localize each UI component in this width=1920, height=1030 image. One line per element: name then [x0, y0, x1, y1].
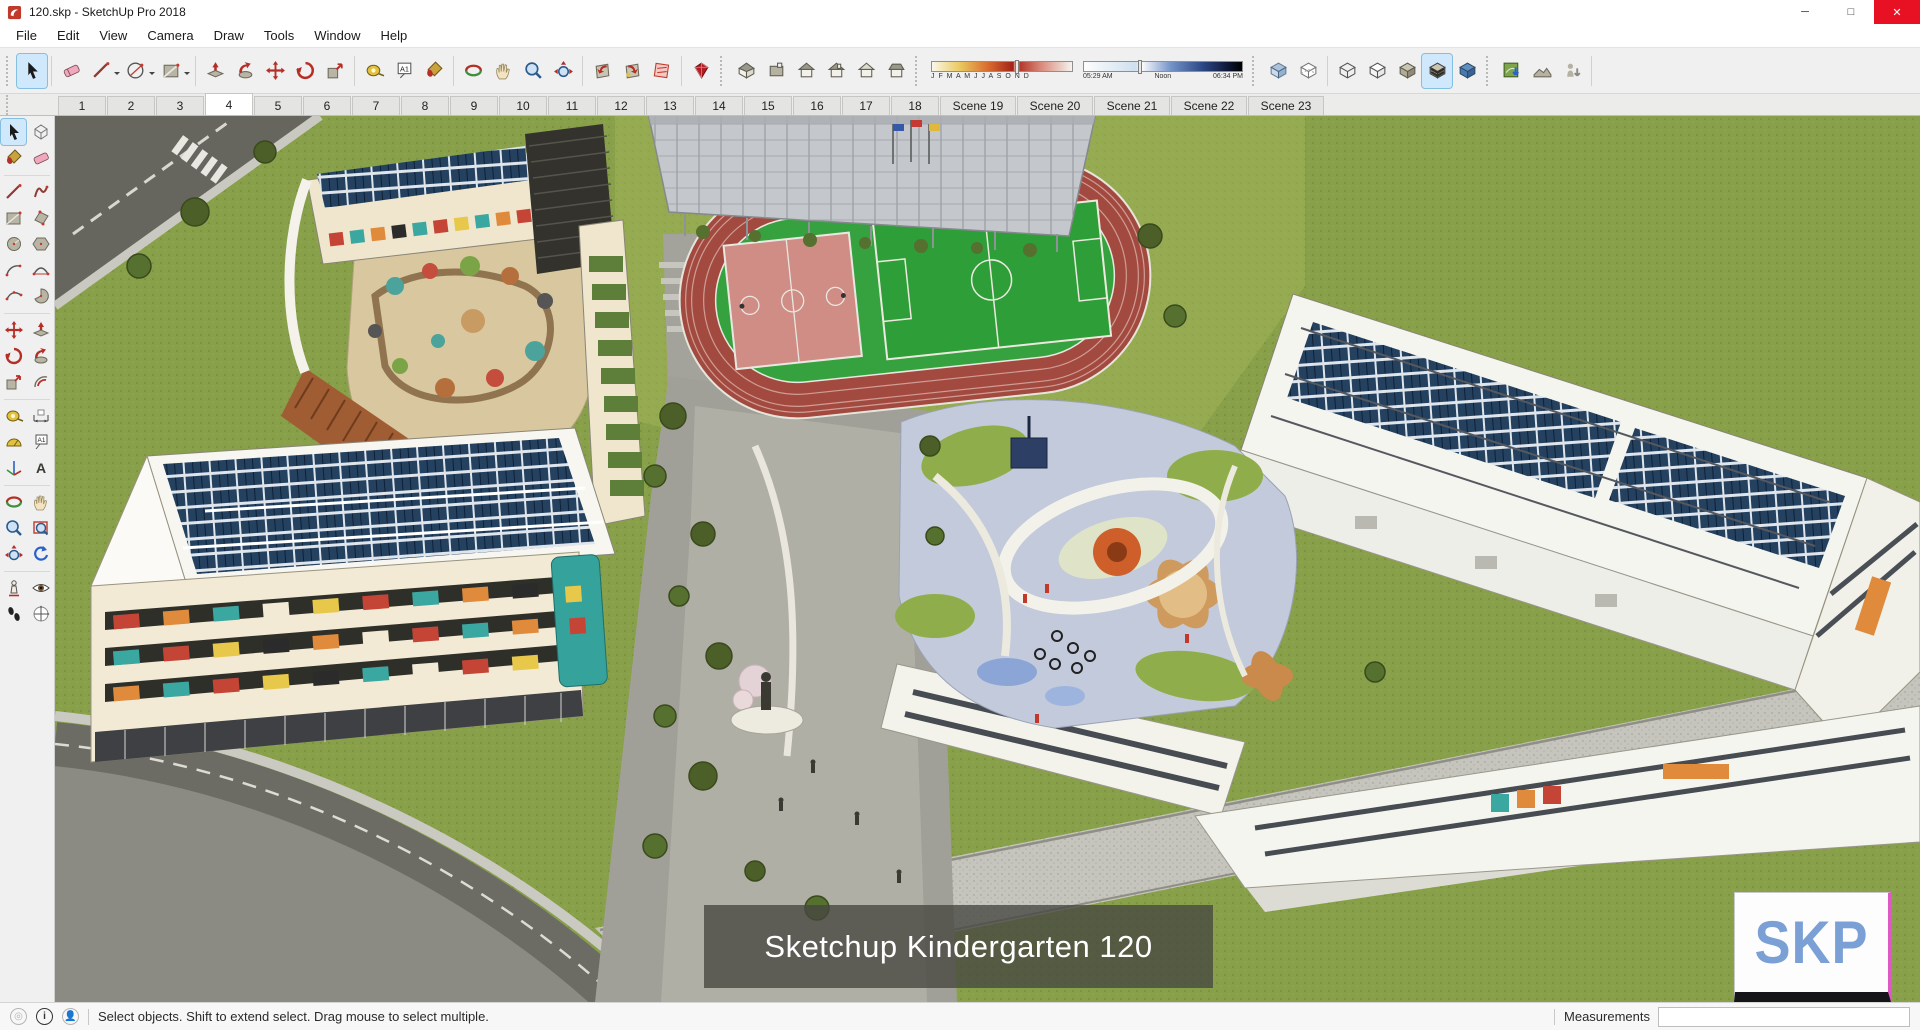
svg-text:A: A [35, 460, 45, 476]
zoom-extents-tool-button[interactable] [548, 54, 578, 88]
scene-tab-7[interactable]: 7 [352, 96, 400, 115]
zoom-icon [523, 60, 544, 81]
zoom-extents-icon [553, 60, 574, 81]
rotated-rectangle-icon [31, 208, 51, 228]
lt-dimension-button[interactable] [28, 403, 53, 429]
scene-caption: Sketchup Kindergarten 120 [704, 905, 1213, 988]
pan-icon [31, 492, 51, 512]
x-ray-icon [1268, 60, 1289, 81]
menu-draw[interactable]: Draw [204, 24, 254, 47]
push-pull-icon [31, 320, 51, 340]
move-icon [265, 60, 286, 81]
arc-icon [126, 60, 147, 81]
scene-tab-3[interactable]: 3 [156, 96, 204, 115]
scene-tab-22[interactable]: Scene 22 [1171, 96, 1247, 115]
orbit-icon [4, 492, 24, 512]
scene-tab-1[interactable]: 1 [58, 96, 106, 115]
scene-tab-20[interactable]: Scene 20 [1017, 96, 1093, 115]
look-around-icon [31, 578, 51, 598]
scene-tab-21[interactable]: Scene 21 [1094, 96, 1170, 115]
monochrome-icon [1457, 60, 1478, 81]
three-d-text-icon: A [31, 458, 51, 478]
lt-three-point-arc-button[interactable] [1, 283, 26, 309]
lt-select-button[interactable] [1, 119, 26, 145]
shadow-time-slider[interactable]: 05:29 AM Noon 06:34 PM [1083, 61, 1243, 80]
right-view-icon [826, 60, 847, 81]
pie-icon [31, 286, 51, 306]
select-icon [4, 122, 24, 142]
select-icon [22, 60, 43, 81]
right-view-button[interactable] [821, 54, 851, 88]
pan-tool-button[interactable] [488, 54, 518, 88]
skp-watermark: SKP [1734, 892, 1891, 1002]
shape-dropdown-arrow[interactable] [184, 72, 190, 78]
scene-tabs-bar: 1 2 3 4 5 6 7 8 9 10 11 12 13 14 15 16 1… [0, 94, 1920, 116]
lt-pie-button[interactable] [28, 283, 53, 309]
hidden-line-icon [1367, 60, 1388, 81]
zoom-window-icon [31, 518, 51, 538]
rectangle-icon [4, 208, 24, 228]
time-start-label: 05:29 AM [1083, 73, 1113, 80]
lt-orbit-button[interactable] [1, 489, 26, 515]
lt-previous-view-button[interactable] [28, 541, 53, 567]
scene-tab-14[interactable]: 14 [695, 96, 743, 115]
toolbar-grip[interactable] [6, 56, 13, 86]
menu-tools[interactable]: Tools [254, 24, 304, 47]
scene-tab-2[interactable]: 2 [107, 96, 155, 115]
follow-me-icon [31, 346, 51, 366]
back-edges-style-button[interactable] [1293, 54, 1323, 88]
zoom-tool-button[interactable] [518, 54, 548, 88]
three-point-arc-icon [4, 286, 24, 306]
section-plane-icon [31, 604, 51, 624]
left-view-icon [886, 60, 907, 81]
shaded-icon [1397, 60, 1418, 81]
time-slider-track[interactable] [1083, 61, 1243, 72]
photo-textures-icon [1562, 60, 1583, 81]
status-bar: ◎ i 👤 Select objects. Shift to extend se… [0, 1002, 1920, 1030]
add-location-icon [1502, 60, 1523, 81]
lt-two-point-arc-button[interactable] [28, 257, 53, 283]
lt-line-button[interactable] [1, 179, 26, 205]
lt-position-camera-button[interactable] [1, 575, 26, 601]
zoom-extents-icon [4, 544, 24, 564]
scene-tab-17[interactable]: 17 [842, 96, 890, 115]
maximize-button[interactable]: □ [1828, 0, 1874, 24]
lt-zoom-window-button[interactable] [28, 515, 53, 541]
paint-bucket-icon [4, 148, 24, 168]
lt-pan-button[interactable] [28, 489, 53, 515]
move-icon [4, 320, 24, 340]
time-mid-label: Noon [1154, 73, 1171, 80]
lt-section-plane-button[interactable] [28, 601, 53, 627]
menu-view[interactable]: View [89, 24, 137, 47]
freehand-icon [31, 182, 51, 202]
status-message: Select objects. Shift to extend select. … [98, 1009, 1545, 1024]
shadow-date-slider[interactable]: J F M A M J J A S O N D [931, 61, 1073, 80]
scene-tab-23[interactable]: Scene 23 [1248, 96, 1324, 115]
rooftop-playground[interactable] [895, 400, 1297, 728]
lt-tape-measure-button[interactable] [1, 403, 26, 429]
south-west-building[interactable] [91, 428, 615, 762]
rotate-icon [4, 346, 24, 366]
wireframe-style-button[interactable] [1332, 54, 1362, 88]
scene-tab-15[interactable]: 15 [744, 96, 792, 115]
lt-3d-text-button[interactable]: A [28, 455, 53, 481]
arc-tool-button[interactable] [121, 54, 151, 88]
lt-move-button[interactable] [1, 317, 26, 343]
rectangle-tool-button[interactable] [156, 54, 186, 88]
menu-window[interactable]: Window [304, 24, 370, 47]
zoom-icon [4, 518, 24, 538]
eraser-icon [61, 60, 82, 81]
monochrome-style-button[interactable] [1452, 54, 1482, 88]
menu-file[interactable]: File [6, 24, 47, 47]
photo-textures-button[interactable] [1557, 54, 1587, 88]
main-toolbar: A1 J F M A M J J A S O N D 05:29 AM Noon… [0, 48, 1920, 94]
follow-me-icon [235, 60, 256, 81]
eraser-icon [31, 148, 51, 168]
lt-protractor-button[interactable] [1, 429, 26, 455]
date-slider-handle[interactable] [1015, 60, 1019, 74]
scene-tab-18[interactable]: 18 [891, 96, 939, 115]
select-tool-button[interactable] [17, 54, 47, 88]
front-view-button[interactable] [791, 54, 821, 88]
scene-tab-8[interactable]: 8 [401, 96, 449, 115]
svg-text:A1: A1 [400, 65, 409, 74]
previous-icon [592, 60, 613, 81]
scale-icon [4, 372, 24, 392]
measurements-input[interactable] [1658, 1007, 1910, 1027]
window-title: 120.skp - SketchUp Pro 2018 [29, 5, 186, 19]
orbit-tool-button[interactable] [458, 54, 488, 88]
dimension-icon [31, 406, 51, 426]
orbit-icon [463, 60, 484, 81]
lt-freehand-button[interactable] [28, 179, 53, 205]
axes-icon [4, 458, 24, 478]
top-view-button[interactable] [761, 54, 791, 88]
large-tool-set: A1 A [0, 116, 55, 1002]
top-view-icon [766, 60, 787, 81]
scene-tab-4[interactable]: 4 [205, 93, 253, 115]
offset-icon [31, 372, 51, 392]
watermark-text: SKP [1754, 908, 1868, 977]
location-toolbar-grip[interactable] [1486, 56, 1493, 86]
circle-icon [4, 234, 24, 254]
shaded-with-textures-style-button[interactable] [1422, 54, 1452, 88]
shaded-style-button[interactable] [1392, 54, 1422, 88]
line-tool-button[interactable] [86, 54, 116, 88]
scene-tab-12[interactable]: 12 [597, 96, 645, 115]
wireframe-icon [1337, 60, 1358, 81]
next-view-button[interactable] [617, 54, 647, 88]
lt-offset-button[interactable] [28, 369, 53, 395]
pencil-icon [4, 182, 24, 202]
lt-make-component-button[interactable] [28, 119, 53, 145]
tape-measure-icon [364, 60, 385, 81]
eraser-tool-button[interactable] [56, 54, 86, 88]
protractor-icon [4, 432, 24, 452]
add-location-button[interactable] [1497, 54, 1527, 88]
text-icon: A1 [31, 432, 51, 452]
date-slider-track[interactable] [931, 61, 1073, 72]
minimize-button[interactable]: ─ [1782, 0, 1828, 24]
section-plane-icon [652, 60, 673, 81]
iso-view-button[interactable] [731, 54, 761, 88]
back-edges-icon [1298, 60, 1319, 81]
lt-zoom-button[interactable] [1, 515, 26, 541]
scene-tabs-grip[interactable] [6, 95, 58, 115]
scene-tab-13[interactable]: 13 [646, 96, 694, 115]
model-viewport[interactable]: Sketchup Kindergarten 120 SKP [55, 116, 1920, 1002]
sketchup-logo-icon [7, 5, 22, 20]
menu-edit[interactable]: Edit [47, 24, 89, 47]
lt-rotate-button[interactable] [1, 343, 26, 369]
back-view-button[interactable] [851, 54, 881, 88]
scene-tab-10[interactable]: 10 [499, 96, 547, 115]
previous-view-icon [31, 544, 51, 564]
lt-push-pull-button[interactable] [28, 317, 53, 343]
rotate-tool-button[interactable] [290, 54, 320, 88]
front-view-icon [796, 60, 817, 81]
scene-tab-6[interactable]: 6 [303, 96, 351, 115]
shadow-toolbar-grip[interactable] [915, 56, 922, 86]
scale-tool-button[interactable] [320, 54, 350, 88]
lt-rectangle-button[interactable] [1, 205, 26, 231]
lt-scale-button[interactable] [1, 369, 26, 395]
lt-paint-bucket-button[interactable] [1, 145, 26, 171]
text-icon: A1 [394, 60, 415, 81]
scene-tab-11[interactable]: 11 [548, 96, 596, 115]
lt-look-around-button[interactable] [28, 575, 53, 601]
section-plane-button[interactable] [647, 54, 677, 88]
arc-icon [4, 260, 24, 280]
scale-icon [325, 60, 346, 81]
status-divider [88, 1009, 89, 1025]
lt-arc-button[interactable] [1, 257, 26, 283]
lt-text-button[interactable]: A1 [28, 429, 53, 455]
follow-me-tool-button[interactable] [230, 54, 260, 88]
text-tool-button[interactable]: A1 [389, 54, 419, 88]
tape-measure-tool-button[interactable] [359, 54, 389, 88]
menu-bar: File Edit View Camera Draw Tools Window … [0, 24, 1920, 48]
kindergarten-3d-model[interactable] [55, 116, 1920, 1002]
svg-text:A1: A1 [37, 437, 45, 444]
shaded-textures-icon [1427, 60, 1448, 81]
play-structure [1011, 438, 1047, 468]
lt-zoom-extents-button[interactable] [1, 541, 26, 567]
lt-rotated-rectangle-button[interactable] [28, 205, 53, 231]
lt-polygon-button[interactable] [28, 231, 53, 257]
lt-circle-button[interactable] [1, 231, 26, 257]
hidden-line-style-button[interactable] [1362, 54, 1392, 88]
measurements-label: Measurements [1564, 1009, 1650, 1024]
push-pull-icon [205, 60, 226, 81]
next-icon [622, 60, 643, 81]
back-view-icon [856, 60, 877, 81]
measurements-divider [1554, 1009, 1555, 1025]
caption-text: Sketchup Kindergarten 120 [764, 929, 1152, 965]
menu-camera[interactable]: Camera [137, 24, 203, 47]
ruby-icon [691, 60, 712, 81]
x-ray-style-button[interactable] [1263, 54, 1293, 88]
time-slider-handle[interactable] [1138, 60, 1142, 74]
iso-view-icon [736, 60, 757, 81]
lt-axes-button[interactable] [1, 455, 26, 481]
polygon-icon [31, 234, 51, 254]
position-camera-icon [4, 578, 24, 598]
toggle-terrain-icon [1532, 60, 1553, 81]
lt-eraser-button[interactable] [28, 145, 53, 171]
pencil-icon [91, 60, 112, 81]
scene-tab-5[interactable]: 5 [254, 96, 302, 115]
scene-tab-19[interactable]: Scene 19 [940, 96, 1016, 115]
scene-tab-9[interactable]: 9 [450, 96, 498, 115]
close-button[interactable]: ✕ [1874, 0, 1920, 24]
lt-walk-button[interactable] [1, 601, 26, 627]
teal-end-block [551, 554, 608, 687]
basketball-court[interactable] [724, 233, 862, 369]
toggle-terrain-button[interactable] [1527, 54, 1557, 88]
two-point-arc-icon [31, 260, 51, 280]
previous-view-button[interactable] [587, 54, 617, 88]
ruby-console-button[interactable] [686, 54, 716, 88]
paint-bucket-tool-button[interactable] [419, 54, 449, 88]
scene-tab-16[interactable]: 16 [793, 96, 841, 115]
make-component-icon [31, 122, 51, 142]
tape-measure-icon [4, 406, 24, 426]
month-labels: J F M A M J J A S O N D [931, 73, 1073, 80]
info-icon[interactable]: i [36, 1008, 53, 1025]
left-view-button[interactable] [881, 54, 911, 88]
rotate-icon [295, 60, 316, 81]
pan-icon [493, 60, 514, 81]
paint-bucket-icon [424, 60, 445, 81]
title-bar: 120.skp - SketchUp Pro 2018 ─ □ ✕ [0, 0, 1920, 24]
views-toolbar-grip[interactable] [720, 56, 727, 86]
rectangle-icon [161, 60, 182, 81]
line-dropdown-arrow[interactable] [114, 72, 120, 78]
move-tool-button[interactable] [260, 54, 290, 88]
lt-follow-me-button[interactable] [28, 343, 53, 369]
styles-toolbar-grip[interactable] [1252, 56, 1259, 86]
arc-dropdown-arrow[interactable] [149, 72, 155, 78]
time-end-label: 06:34 PM [1213, 73, 1243, 80]
account-icon[interactable]: 👤 [62, 1008, 79, 1025]
walk-icon [4, 604, 24, 624]
push-pull-tool-button[interactable] [200, 54, 230, 88]
menu-help[interactable]: Help [371, 24, 418, 47]
geolocation-icon[interactable]: ◎ [10, 1008, 27, 1025]
